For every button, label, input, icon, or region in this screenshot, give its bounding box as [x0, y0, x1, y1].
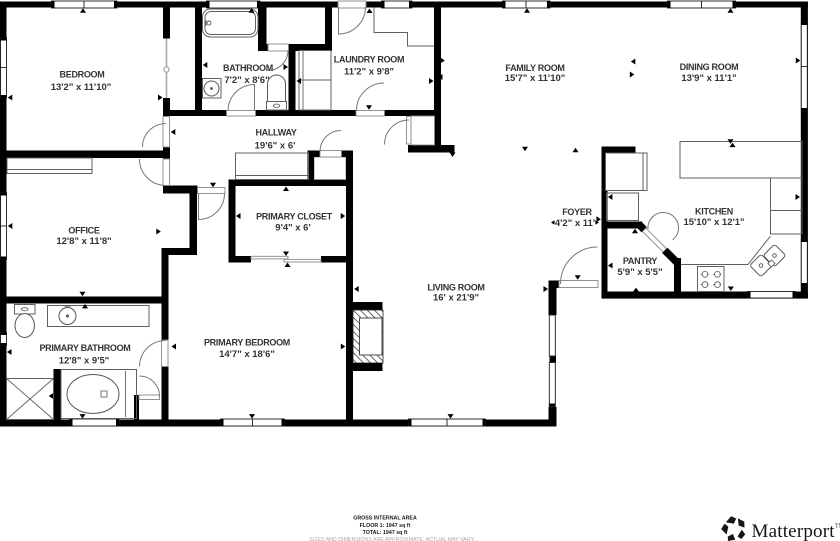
svg-text:14'7" x 18'6": 14'7" x 18'6" — [219, 349, 275, 360]
svg-text:OFFICE: OFFICE — [68, 226, 99, 236]
svg-text:12'8" x 9'5": 12'8" x 9'5" — [59, 356, 110, 367]
svg-text:HALLWAY: HALLWAY — [255, 128, 296, 138]
svg-text:LAUNDRY ROOM: LAUNDRY ROOM — [334, 55, 404, 65]
svg-text:5'9" x 5'5": 5'9" x 5'5" — [617, 267, 662, 278]
svg-text:15'7" x 11'10": 15'7" x 11'10" — [505, 73, 566, 84]
svg-text:PRIMARY BEDROOM: PRIMARY BEDROOM — [204, 338, 290, 348]
svg-text:FLOOR 1: 1947 sq ft: FLOOR 1: 1947 sq ft — [360, 523, 411, 529]
svg-text:GROSS INTERNAL AREA: GROSS INTERNAL AREA — [353, 516, 417, 522]
svg-text:SIZES AND DIMENSIONS ARE APPRO: SIZES AND DIMENSIONS ARE APPROXIMATE. AC… — [309, 537, 475, 541]
svg-text:FOYER: FOYER — [562, 207, 592, 217]
svg-text:Matterport: Matterport — [752, 521, 836, 541]
svg-text:9'4" x 6': 9'4" x 6' — [275, 223, 310, 234]
svg-text:4'2" x 11': 4'2" x 11' — [555, 218, 595, 229]
svg-text:TOTAL: 1947 sq ft: TOTAL: 1947 sq ft — [363, 530, 408, 536]
svg-text:11'2" x 9'8": 11'2" x 9'8" — [344, 67, 394, 78]
svg-text:13'2" x 11'10": 13'2" x 11'10" — [51, 82, 112, 93]
svg-text:15'10" x 12'1": 15'10" x 12'1" — [683, 217, 744, 228]
svg-text:FAMILY ROOM: FAMILY ROOM — [505, 63, 564, 73]
svg-text:BEDROOM: BEDROOM — [60, 70, 105, 80]
svg-text:BATHROOM: BATHROOM — [223, 63, 273, 73]
svg-text:19'6" x 6': 19'6" x 6' — [255, 141, 296, 152]
svg-text:PRIMARY CLOSET: PRIMARY CLOSET — [256, 212, 333, 222]
svg-text:DINING ROOM: DINING ROOM — [680, 62, 739, 72]
svg-text:PRIMARY BATHROOM: PRIMARY BATHROOM — [39, 343, 130, 353]
svg-text:13'9" x 11'1": 13'9" x 11'1" — [681, 73, 736, 84]
svg-text:16' x 21'9": 16' x 21'9" — [433, 293, 479, 304]
svg-text:KITCHEN: KITCHEN — [695, 207, 733, 217]
svg-text:12'8" x 11'8": 12'8" x 11'8" — [56, 236, 111, 247]
svg-text:TM: TM — [835, 524, 840, 530]
svg-text:7'2" x 8'6": 7'2" x 8'6" — [224, 75, 269, 86]
svg-text:PANTRY: PANTRY — [623, 256, 657, 266]
svg-text:LIVING ROOM: LIVING ROOM — [427, 283, 484, 293]
